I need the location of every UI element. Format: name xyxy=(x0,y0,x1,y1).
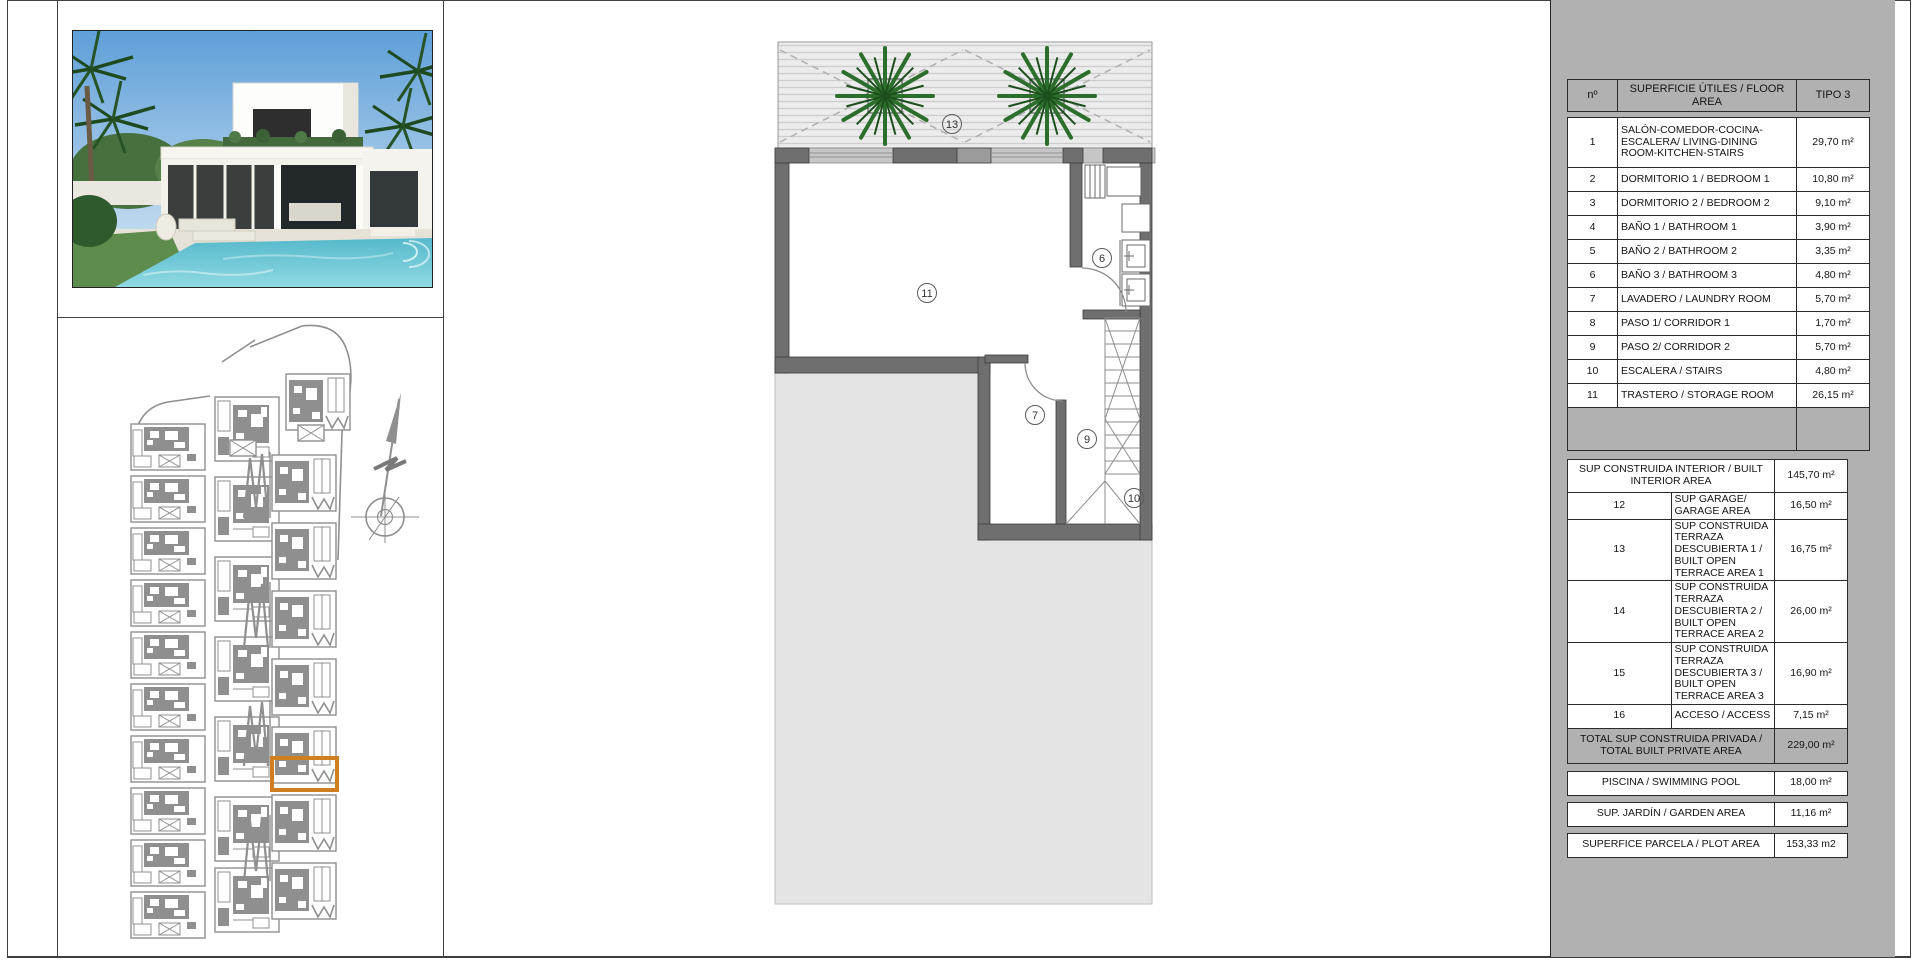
drawing-sheet: 13 11 6 7 9 10 xyxy=(0,0,1920,964)
north-arrow-head xyxy=(386,393,401,444)
room-label-9: 9 xyxy=(1078,430,1097,449)
table-row: 7 LAVADERO / LAUNDRY ROOM 5,70 m² xyxy=(1568,288,1870,312)
total-value: 229,00 m² xyxy=(1775,728,1848,763)
table-total-row: TOTAL SUP CONSTRUIDA PRIVADA / TOTAL BUI… xyxy=(1568,728,1848,763)
plot-area xyxy=(775,373,1152,904)
table-row: 14 SUP CONSTRUIDA TERRAZA DESCUBIERTA 2 … xyxy=(1568,581,1848,643)
site-units xyxy=(131,374,350,938)
garden-row: SUP. JARDÍN / GARDEN AREA 11,16 m² xyxy=(1567,802,1848,827)
svg-text:10: 10 xyxy=(1128,493,1140,505)
header-name: SUPERFICIE ÚTILES / FLOOR AREA xyxy=(1618,80,1797,112)
table-row: 16 ACCESO / ACCESS 7,15 m² xyxy=(1568,704,1848,728)
areas-table: nº SUPERFICIE ÚTILES / FLOOR AREA TIPO 3… xyxy=(1567,79,1848,858)
room-label-6: 6 xyxy=(1093,249,1112,268)
terrace xyxy=(778,42,1152,148)
frame-line-left-outer xyxy=(7,0,8,958)
villa-photo xyxy=(72,30,433,288)
north-compass xyxy=(351,393,419,543)
svg-text:11: 11 xyxy=(921,288,932,300)
header-num: nº xyxy=(1568,80,1618,112)
table-row: 3 DORMITORIO 2 / BEDROOM 2 9,10 m² xyxy=(1568,192,1870,216)
table-row: 13 SUP CONSTRUIDA TERRAZA DESCUBIERTA 1 … xyxy=(1568,519,1848,581)
table-row: 9 PASO 2/ CORRIDOR 2 5,70 m² xyxy=(1568,336,1870,360)
built-interior-label: SUP CONSTRUIDA INTERIOR / BUILT INTERIOR… xyxy=(1568,460,1775,493)
total-label: TOTAL SUP CONSTRUIDA PRIVADA / TOTAL BUI… xyxy=(1568,728,1775,763)
floor-plan: 13 11 6 7 9 10 xyxy=(443,0,1550,956)
pool-row: PISCINA / SWIMMING POOL 18,00 m² xyxy=(1567,771,1848,796)
rooms-table: 1 SALÓN-COMEDOR-COCINA-ESCALERA/ LIVING-… xyxy=(1567,117,1870,451)
plot-row: SUPERFICE PARCELA / PLOT AREA 153,33 m2 xyxy=(1567,833,1848,858)
svg-text:13: 13 xyxy=(946,119,958,131)
villa-photo-art xyxy=(73,31,432,287)
frame-line-right xyxy=(1910,0,1911,958)
svg-text:9: 9 xyxy=(1084,434,1090,446)
table-header-row: nº SUPERFICIE ÚTILES / FLOOR AREA TIPO 3 xyxy=(1567,79,1870,112)
planter-pot xyxy=(156,214,176,240)
table-row: 6 BAÑO 3 / BATHROOM 3 4,80 m² xyxy=(1568,264,1870,288)
table-row: 10 ESCALERA / STAIRS 4,80 m² xyxy=(1568,360,1870,384)
table-row: SUP CONSTRUIDA INTERIOR / BUILT INTERIOR… xyxy=(1568,460,1848,493)
table-row: 8 PASO 1/ CORRIDOR 1 1,70 m² xyxy=(1568,312,1870,336)
room-label-7: 7 xyxy=(1026,406,1045,425)
table-row: 4 BAÑO 1 / BATHROOM 1 3,90 m² xyxy=(1568,216,1870,240)
table-row: 2 DORMITORIO 1 / BEDROOM 1 10,80 m² xyxy=(1568,168,1870,192)
svg-text:7: 7 xyxy=(1032,410,1038,422)
table-row: 5 BAÑO 2 / BATHROOM 2 3,35 m² xyxy=(1568,240,1870,264)
table-row: 1 SALÓN-COMEDOR-COCINA-ESCALERA/ LIVING-… xyxy=(1568,118,1870,168)
room-label-11: 11 xyxy=(918,284,937,303)
table-row: 11 TRASTERO / STORAGE ROOM 26,15 m² xyxy=(1568,384,1870,408)
site-plan xyxy=(57,317,443,956)
table-row: 12 SUP GARAGE/ GARAGE AREA 16,50 m² xyxy=(1568,493,1848,520)
svg-text:6: 6 xyxy=(1099,253,1105,265)
table-spacer-row xyxy=(1568,408,1870,451)
table-row: 15 SUP CONSTRUIDA TERRAZA DESCUBIERTA 3 … xyxy=(1568,643,1848,705)
built-areas-table: SUP CONSTRUIDA INTERIOR / BUILT INTERIOR… xyxy=(1567,459,1848,764)
header-type: TIPO 3 xyxy=(1797,80,1870,112)
